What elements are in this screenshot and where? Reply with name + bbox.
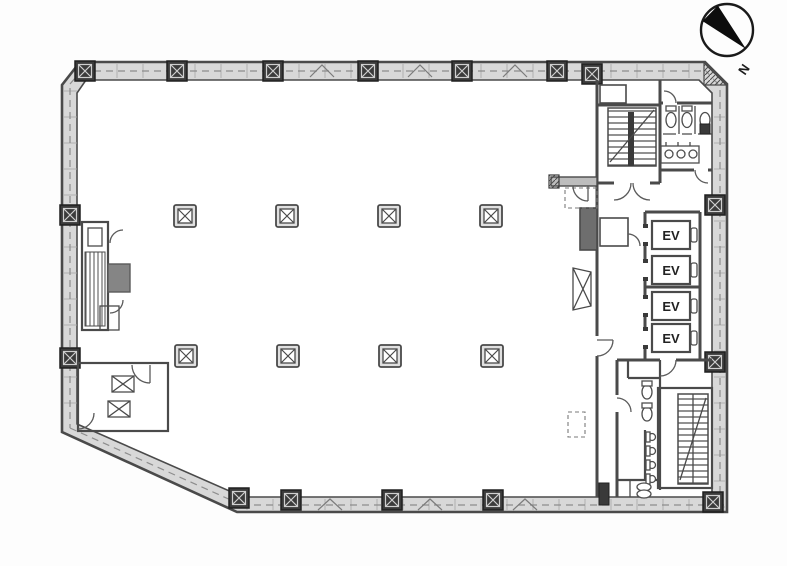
- column: [452, 61, 472, 81]
- column: [281, 490, 301, 510]
- column: [358, 61, 378, 81]
- hall-closet: [600, 218, 628, 246]
- column: [167, 61, 187, 81]
- column: [703, 492, 723, 512]
- column: [582, 64, 602, 84]
- column: [382, 490, 402, 510]
- small-shaft: [700, 124, 710, 134]
- floor-plan-svg: EV EV EV EV: [0, 0, 787, 566]
- column: [174, 205, 196, 227]
- column: [175, 345, 197, 367]
- north-label: N: [735, 61, 753, 77]
- column: [263, 61, 283, 81]
- column: [705, 195, 725, 215]
- column: [277, 345, 299, 367]
- column: [379, 345, 401, 367]
- column: [60, 205, 80, 225]
- column: [276, 205, 298, 227]
- ev-label: EV: [662, 263, 680, 278]
- column: [480, 205, 502, 227]
- floor-plan-page: EV EV EV EV: [0, 0, 787, 566]
- column: [378, 205, 400, 227]
- duct-shaft: [580, 208, 597, 250]
- column: [483, 490, 503, 510]
- column: [547, 61, 567, 81]
- north-stairwell: [608, 108, 656, 166]
- ev-label: EV: [662, 299, 680, 314]
- stub-wall-cap: [549, 175, 559, 188]
- ev-label: EV: [662, 228, 680, 243]
- south-stairwell: [678, 394, 708, 484]
- equipment-block: [108, 264, 130, 292]
- pipe-shaft: [599, 483, 609, 505]
- corner-hatch: [704, 63, 726, 85]
- column: [229, 488, 249, 508]
- vestibule-counter: [600, 85, 626, 103]
- column: [75, 61, 95, 81]
- column: [481, 345, 503, 367]
- column: [705, 352, 725, 372]
- ev-label: EV: [662, 331, 680, 346]
